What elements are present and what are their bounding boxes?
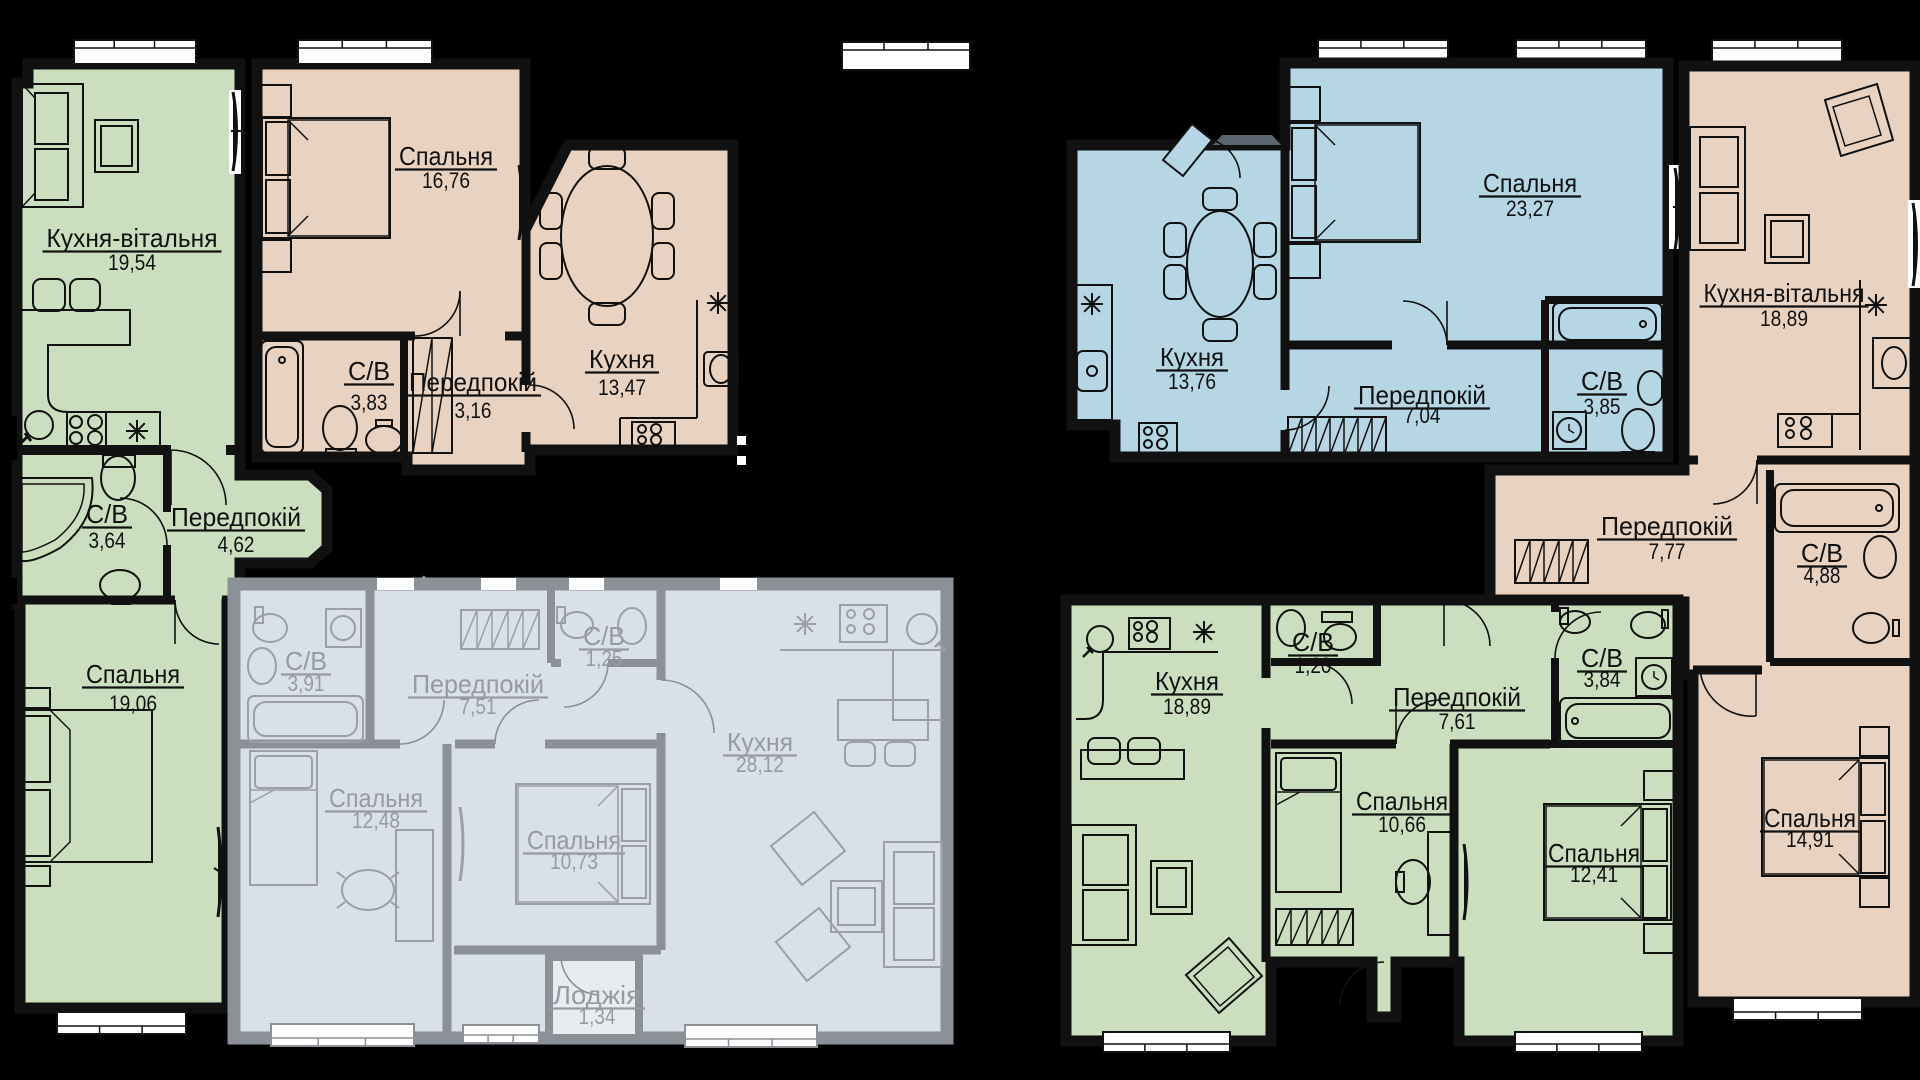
svg-text:1,20: 1,20	[1295, 653, 1332, 678]
svg-text:Передпокій: Передпокій	[171, 502, 301, 532]
svg-text:14,91: 14,91	[1786, 827, 1834, 852]
svg-text:19,06: 19,06	[109, 691, 157, 716]
svg-text:7,51: 7,51	[460, 694, 497, 719]
svg-text:1,25: 1,25	[586, 646, 623, 671]
svg-text:12,48: 12,48	[352, 808, 400, 833]
svg-text:С/В: С/В	[348, 356, 390, 386]
svg-text:28,12: 28,12	[736, 752, 784, 777]
svg-text:18,89: 18,89	[1760, 306, 1808, 331]
svg-text:Спальня: Спальня	[1483, 168, 1577, 198]
svg-text:Передпокій: Передпокій	[1393, 682, 1521, 712]
svg-text:Кухня-вітальня: Кухня-вітальня	[1704, 278, 1865, 308]
svg-text:3,85: 3,85	[1584, 394, 1621, 419]
svg-text:18,89: 18,89	[1163, 694, 1211, 719]
svg-text:С/В: С/В	[86, 499, 128, 529]
svg-text:1,34: 1,34	[579, 1004, 616, 1029]
svg-text:10,73: 10,73	[550, 849, 598, 874]
svg-text:10,66: 10,66	[1378, 812, 1426, 837]
svg-text:4,62: 4,62	[218, 532, 255, 557]
svg-text:Передпокій: Передпокій	[1601, 511, 1733, 541]
svg-text:13,76: 13,76	[1168, 369, 1216, 394]
svg-text:С/В: С/В	[1581, 366, 1623, 396]
svg-text:4,88: 4,88	[1804, 563, 1841, 588]
svg-text:7,61: 7,61	[1439, 709, 1476, 734]
svg-text:23,27: 23,27	[1506, 196, 1554, 221]
svg-text:Спальня: Спальня	[399, 141, 493, 171]
svg-text:12,41: 12,41	[1570, 862, 1618, 887]
svg-text:Кухня: Кухня	[1160, 342, 1224, 372]
svg-text:3,84: 3,84	[1584, 667, 1621, 692]
svg-text:Кухня-вітальня: Кухня-вітальня	[47, 223, 218, 253]
svg-text:7,77: 7,77	[1649, 539, 1686, 564]
svg-text:3,16: 3,16	[455, 398, 492, 423]
svg-text:Передпокій: Передпокій	[409, 367, 537, 397]
svg-text:16,76: 16,76	[422, 168, 470, 193]
svg-text:Кухня: Кухня	[589, 344, 655, 374]
svg-text:3,91: 3,91	[288, 671, 325, 696]
svg-text:13,47: 13,47	[598, 375, 646, 400]
svg-text:19,54: 19,54	[108, 250, 156, 275]
svg-text:Спальня: Спальня	[86, 659, 180, 689]
svg-text:3,83: 3,83	[351, 390, 388, 415]
svg-text:Кухня: Кухня	[1155, 666, 1219, 696]
svg-text:3,64: 3,64	[89, 528, 126, 553]
svg-text:7,04: 7,04	[1404, 403, 1441, 428]
